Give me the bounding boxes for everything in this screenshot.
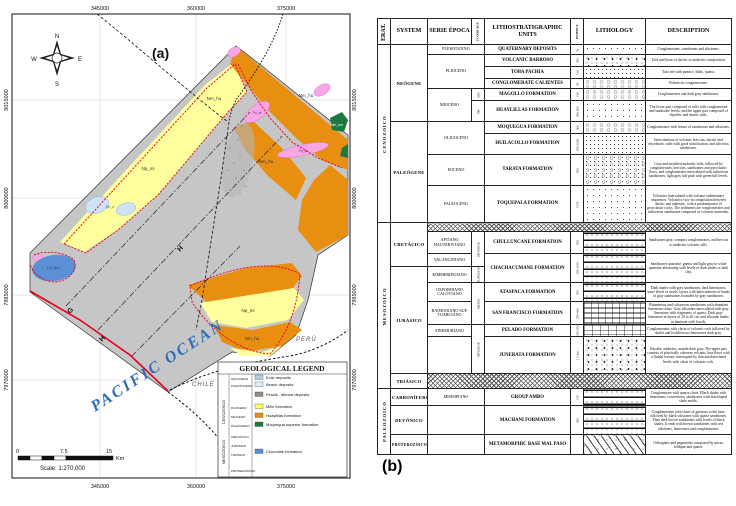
unit-moquegua: MOQUEGUA FORMATION [485, 122, 571, 134]
lithology-barroso [584, 55, 646, 67]
system-paleogene: PALEÓGENE [391, 122, 428, 223]
svg-text:Fluvial - alluvial deposits: Fluvial - alluvial deposits [266, 392, 309, 397]
table-row: CENOZOICO NEÓGENE PLEISTOCENO QUATERNARY… [378, 45, 732, 55]
serie-aptiano-hauteriviano: APTIANO HAUTERIVIANO [428, 232, 472, 254]
svg-text:Nm_hu: Nm_hu [245, 336, 260, 341]
table-row: PALEOZOICO CARBONÍFERO MISISIPIANO GROUP… [378, 389, 732, 406]
table-row: JUNERATA FORMATION 1.5 km Basaltic andes… [378, 337, 732, 374]
unit-huilacollo: HUILACOLLO FORMATION [485, 134, 571, 155]
unit-junerata: JUNERATA FORMATION [485, 337, 571, 374]
svg-text:Millo formation: Millo formation [266, 404, 292, 409]
lithology-calientes [584, 79, 646, 89]
svg-text:Po_ta: Po_ta [299, 149, 308, 153]
serie-valanginiano: VALANGINIANO [428, 254, 472, 267]
svg-text:Km: Km [116, 456, 125, 462]
svg-text:360000: 360000 [187, 6, 205, 12]
table-row: PLIOCENO VOLCANIC BARROSO 300 Tufa and l… [378, 55, 732, 67]
svg-text:TrJ_cho: TrJ_cho [47, 266, 60, 270]
svg-text:15: 15 [106, 449, 112, 455]
system-neogene: NEÓGENE [391, 45, 428, 122]
svg-text:8000000: 8000000 [4, 187, 10, 208]
geological-legend: GEOLOGICAL LEGEND CENOZOICO MESOZOICO PR… [218, 362, 347, 477]
legend-era-proterozoico: PROTEROZOICO [231, 469, 256, 473]
svg-text:CRETÁCICO: CRETÁCICO [231, 435, 249, 439]
svg-text:7970000: 7970000 [352, 369, 358, 390]
unit-conglomerate-calientes: CONGLOMERATE CALIENTES [485, 79, 571, 89]
unit-chachacumane: CHACHACUMANE FORMATION [485, 254, 571, 283]
table-row: PALEÓGENE OLIGOCENO MOQUEGUA FORMATION 4… [378, 122, 732, 134]
system-carbonifero: CARBONÍFERO [391, 389, 428, 406]
svg-text:Nm_hu: Nm_hu [299, 93, 314, 98]
unit-toba-pachia: TOBA PACHIA [485, 67, 571, 79]
unit-quaternary-deposits: QUATERNARY DEPOSITS [485, 45, 571, 55]
svg-text:Nm_hu: Nm_hu [259, 159, 274, 164]
lithology-junerata [584, 337, 646, 374]
system-cretacico: CRETÁCICO [391, 223, 428, 267]
svg-text:JURÁSICO: JURÁSICO [231, 444, 247, 448]
unit-huaylillas: HUAYLILLAS FORMATION [485, 101, 571, 122]
header-potency: POTENCY [571, 19, 584, 45]
svg-text:N: N [55, 34, 59, 40]
table-header-row: ERAT. SYSTEM SERIE ÉPOCA FLOOR AGE LITHO… [378, 19, 732, 45]
serie-pleistoceno: PLEISTOCENO [428, 45, 485, 55]
unit-tarata: TARATA FORMATION [485, 155, 571, 186]
compass-rose: N S W E [31, 34, 82, 88]
lithology-mal-paso [584, 435, 646, 455]
serie-oxfordiano-caloviano: OXFORDIANO CALOVIANO [428, 283, 472, 302]
svg-text:8015000: 8015000 [4, 89, 10, 110]
table-row: OXFORDIANO CALOVIANO MEDIO ATASPACA FORM… [378, 283, 732, 302]
svg-text:8015000: 8015000 [352, 89, 358, 110]
svg-text:360000: 360000 [187, 484, 205, 490]
serie-bathoniano-toarciano: BATHONIANO SUP. TOARCIANO [428, 302, 472, 325]
table-row: VALANGINIANO CHACHACUMANE FORMATION 300-… [378, 254, 732, 267]
moquegua-superior-unit [330, 112, 348, 132]
lithology-tarata [584, 155, 646, 186]
header-serie: SERIE ÉPOCA [428, 19, 472, 45]
svg-text:Huaylillas formation: Huaylillas formation [266, 413, 301, 418]
svg-text:Beach deposits: Beach deposits [266, 382, 293, 387]
svg-text:E: E [78, 57, 82, 63]
unit-san-francisco: SAN FRANCISCO FORMATION [485, 302, 571, 325]
svg-text:Eolic deposits: Eolic deposits [266, 375, 291, 380]
legend-title: GEOLOGICAL LEGEND [239, 364, 325, 373]
svg-text:345000: 345000 [91, 6, 109, 12]
unit-ataspaca: ATASPACA FORMATION [485, 283, 571, 302]
serie-paleoceno: PALEOCENO [428, 186, 485, 223]
unit-toquepala: TOQUEPALA FORMATION [485, 186, 571, 223]
header-description: DESCRIPTION [646, 19, 732, 45]
lithology-quaternary [584, 45, 646, 55]
table-row: APTIANO HAUTERIVIANO INFERIOR CHULLUNCAN… [378, 232, 732, 254]
unit-volcanic-barroso: VOLCANIC BARROSO [485, 55, 571, 67]
table-row: PALEOCENO TOQUEPALA FORMATION 1570 Volca… [378, 186, 732, 223]
lithology-toquepala [584, 186, 646, 223]
svg-text:MIOCENO: MIOCENO [231, 415, 246, 419]
system-jurasico: JURÁSICO [391, 267, 428, 374]
peru-label: PERÚ [296, 336, 317, 343]
svg-text:7.5: 7.5 [60, 449, 68, 455]
unconformity-row: TRIÁSICO [378, 374, 732, 389]
era-cenozoico: CENOZOICO [378, 45, 391, 223]
svg-text:375000: 375000 [277, 484, 295, 490]
legend-era-cenozoico: CENOZOICO [221, 400, 226, 424]
table-row: SINEMURIANO INFERIOR PELADO FORMATION 25… [378, 325, 732, 337]
system-proterozoico: PROTEROZOICO [391, 435, 428, 455]
unit-mal-paso: METAMORPHIC BASE MAL PASO [485, 435, 571, 455]
table-row: MIOCENO SUP. MAGOLLO FORMATION 100 Congl… [378, 89, 732, 101]
svg-text:8000000: 8000000 [352, 187, 358, 208]
lithology-huaylillas [584, 101, 646, 122]
legend-era-mesozoico: MESOZOICO [221, 440, 226, 464]
era-mesozoico: MESOZOICO [378, 223, 391, 389]
svg-text:W: W [31, 57, 37, 63]
svg-text:375000: 375000 [277, 6, 295, 12]
svg-text:Nm_mo: Nm_mo [331, 123, 343, 127]
lithology-pachia [584, 67, 646, 79]
table-row: DEVÓNICO MACHANI FORMATION 400 Conglomer… [378, 406, 732, 435]
header-units: LITHOSTRATIGRAPHIC UNITS [485, 19, 571, 45]
lithology-pelado [584, 325, 646, 337]
svg-text:HOLOCENO: HOLOCENO [231, 377, 249, 381]
unit-chulluncane: CHULLUNCANE FORMATION [485, 232, 571, 254]
panel-b-label: (b) [382, 458, 402, 476]
scale-bar: 0 7.5 15 Km Scale: 1:270,000 [16, 449, 125, 472]
unit-magollo: MAGOLLO FORMATION [485, 89, 571, 101]
serie-mioceno: MIOCENO [428, 89, 472, 122]
era-paleozoico: PALEOZOICO [378, 389, 391, 455]
lithology-ambo [584, 389, 646, 406]
unconformity-band [428, 223, 732, 232]
lithology-magollo [584, 89, 646, 101]
svg-text:0: 0 [16, 449, 19, 455]
serie-plioceno: PLIOCENO [428, 55, 485, 89]
triassic-hatch-band [428, 374, 732, 389]
lithology-moquegua [584, 122, 646, 134]
svg-text:7985000: 7985000 [4, 284, 10, 305]
svg-text:Qh_e: Qh_e [106, 205, 115, 209]
svg-text:PLIOCENO: PLIOCENO [231, 406, 247, 410]
lithology-san-francisco [584, 302, 646, 325]
svg-text:Np_mi: Np_mi [241, 308, 254, 313]
svg-text:TRIÁSICO: TRIÁSICO [231, 453, 246, 457]
svg-text:Np_mi: Np_mi [141, 166, 154, 171]
system-triasico: TRIÁSICO [391, 374, 428, 389]
svg-text:7970000: 7970000 [4, 369, 10, 390]
serie-misisipiano: MISISIPIANO [428, 389, 485, 406]
serie-eoceno: EOCENO [428, 155, 485, 186]
svg-text:Po_ta: Po_ta [253, 111, 262, 115]
geological-map-panel: 345000 360000 375000 345000 360000 37500… [0, 0, 370, 501]
svg-text:PLEISTOCENO: PLEISTOCENO [231, 384, 253, 388]
header-era: ERAT. [378, 19, 391, 45]
serie-kimmeridgiano: KIMMERIDGIANO [428, 267, 472, 283]
panel-a-label: (a) [152, 45, 169, 61]
svg-text:Nm_hu: Nm_hu [207, 96, 222, 101]
table-row: PROTEROZOICO METAMORPHIC BASE MAL PASO O… [378, 435, 732, 455]
table-row: EOCENO TARATA FORMATION 900 Gray and str… [378, 155, 732, 186]
unit-group-ambo: GROUP AMBO [485, 389, 571, 406]
lithology-chulluncane [584, 232, 646, 254]
svg-text:PALEÓGENO: PALEÓGENO [231, 423, 250, 428]
lithology-ataspaca [584, 283, 646, 302]
system-devonico: DEVÓNICO [391, 406, 428, 435]
unit-pelado: PELADO FORMATION [485, 325, 571, 337]
lithology-machani [584, 406, 646, 435]
header-floor-age: FLOOR AGE [472, 19, 485, 45]
svg-text:S: S [55, 82, 59, 88]
stratigraphic-table: ERAT. SYSTEM SERIE ÉPOCA FLOOR AGE LITHO… [377, 18, 732, 455]
unconformity-row: MESOZOICO CRETÁCICO [378, 223, 732, 232]
svg-text:7985000: 7985000 [352, 284, 358, 305]
svg-text:Scale: 1:270,000: Scale: 1:270,000 [40, 466, 86, 472]
svg-text:Chocolate formation: Chocolate formation [266, 449, 302, 454]
stratigraphic-column-panel: ERAT. SYSTEM SERIE ÉPOCA FLOOR AGE LITHO… [377, 18, 733, 455]
lithology-huilacollo [584, 134, 646, 155]
serie-oligoceno: OLIGOCENO [428, 122, 485, 155]
header-lithology: LITHOLOGY [584, 19, 646, 45]
unit-machani: MACHANI FORMATION [485, 406, 571, 435]
serie-sinemuriano: SINEMURIANO [428, 325, 472, 337]
table-row: BATHONIANO SUP. TOARCIANO SAN FRANCISCO … [378, 302, 732, 325]
lithology-chachacumane [584, 254, 646, 283]
chile-label: CHILE [192, 382, 215, 388]
svg-text:Moquegua superior formation: Moquegua superior formation [266, 422, 318, 427]
svg-text:345000: 345000 [91, 484, 109, 490]
header-system: SYSTEM [391, 19, 428, 45]
